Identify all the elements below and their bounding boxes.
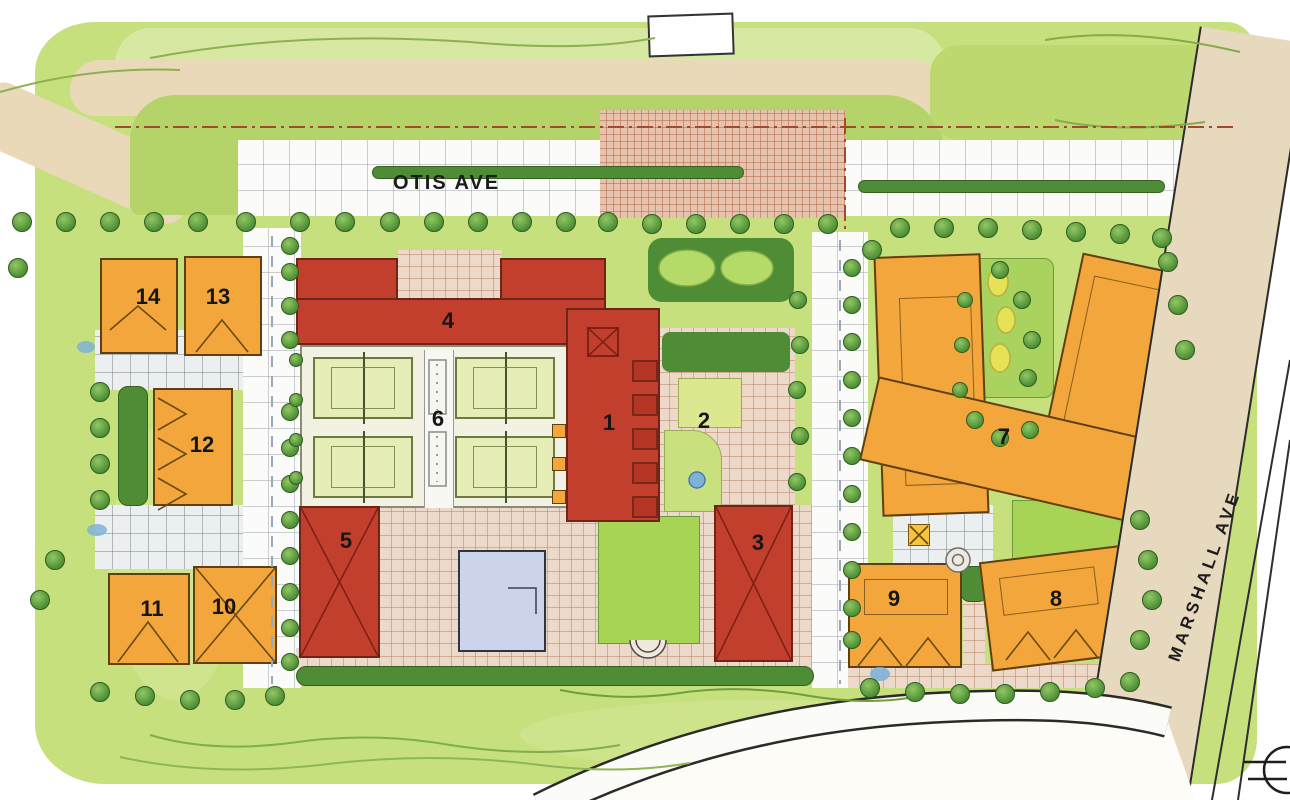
building-1-balcony (632, 394, 658, 416)
south-hedge-row (296, 666, 814, 686)
offsite-building-footprint (647, 13, 734, 58)
parcel-14-label: 14 (132, 284, 164, 310)
parcel-11-label: 11 (136, 596, 168, 622)
parcel-1-label: 1 (593, 410, 625, 436)
parcel-7-label: 7 (988, 424, 1020, 450)
tennis-court (455, 357, 555, 419)
landscape-light-patch2 (520, 700, 1000, 770)
building-1-balcony (632, 428, 658, 450)
courtyard2-lawn2 (664, 430, 722, 512)
tennis-court (313, 436, 413, 498)
central-lawn (598, 516, 700, 644)
building-1-balcony (632, 360, 658, 382)
parcel-8-label: 8 (1040, 586, 1072, 612)
building-3 (714, 505, 793, 662)
kiosk (908, 524, 930, 546)
otis-ave-label: OTIS AVE (393, 172, 500, 194)
building-1-balcony (632, 462, 658, 484)
parcel-3-label: 3 (742, 530, 774, 556)
parcel12-hedge (118, 386, 148, 506)
west-court-lower (95, 505, 243, 569)
parcel-4-label: 4 (432, 308, 464, 334)
parcel4-plaza (398, 250, 502, 302)
building-1-stoop (552, 424, 566, 438)
pool-building (458, 550, 546, 652)
building-1-stoop (552, 490, 566, 504)
parcel-12-label: 12 (186, 432, 218, 458)
parcel-6-label: 6 (422, 406, 454, 432)
courtyard2-garden (662, 332, 790, 372)
parcel-2-label: 2 (688, 408, 720, 434)
parcel-13-label: 13 (202, 284, 234, 310)
building-1-balcony (632, 496, 658, 518)
median-garden (648, 238, 794, 302)
parcel-10-label: 10 (208, 594, 240, 620)
parcel-9-label: 9 (878, 586, 910, 612)
between-9-8-path (963, 596, 985, 688)
tree-icon (8, 258, 28, 278)
otis-hedge-east (858, 180, 1165, 193)
tree-icon (12, 212, 32, 232)
tennis-court (455, 436, 555, 498)
site-plan: OTIS AVE MARSHALL AVE 1 2 3 4 5 6 7 8 9 … (0, 0, 1290, 800)
tennis-court (313, 357, 413, 419)
parcel-5-label: 5 (330, 528, 362, 554)
otis-median-crossing (600, 110, 845, 218)
building-1-stoop (552, 457, 566, 471)
building-9 (848, 563, 962, 668)
